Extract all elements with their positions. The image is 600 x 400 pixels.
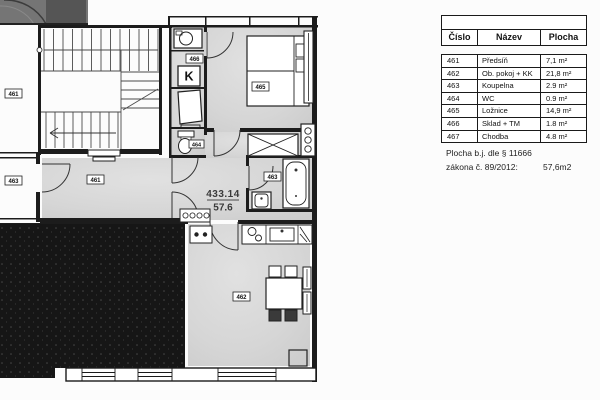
facade-wall bbox=[66, 368, 316, 381]
stair-walkline-arrow bbox=[50, 128, 116, 138]
label-wc: 464 bbox=[189, 140, 204, 149]
stair-treads-lower bbox=[41, 112, 121, 148]
label-predsin: 461 bbox=[87, 175, 104, 184]
bathtub-icon bbox=[283, 159, 309, 208]
staircase bbox=[37, 25, 172, 155]
cell-plocha: 7,1 m² bbox=[540, 55, 586, 67]
cell-nazev: Ložnice bbox=[477, 105, 540, 117]
col-header-plocha: Plocha bbox=[540, 30, 586, 45]
cell-nazev: Ob. pokoj + KK bbox=[477, 68, 540, 80]
page: 461 463 461 466 464 465 463 462 K 433.14… bbox=[0, 0, 600, 400]
cell-cislo: 463 bbox=[442, 80, 477, 92]
table-row: 461 Předsíň 7,1 m² bbox=[442, 55, 586, 67]
note-line1: Plocha b.j. dle § 11666 bbox=[446, 148, 532, 158]
cell-nazev: Sklad + TM bbox=[477, 118, 540, 130]
kitchen-counter bbox=[242, 225, 312, 244]
label-sklad: 466 bbox=[186, 54, 203, 63]
cell-nazev: Chodba bbox=[477, 131, 540, 143]
table-row: 466 Sklad + TM 1.8 m² bbox=[442, 117, 586, 130]
legend-header-box: Číslo Název Plocha bbox=[441, 15, 587, 46]
bedroom-label-text: 465 bbox=[255, 85, 266, 91]
label-neighbor-463: 463 bbox=[5, 176, 22, 185]
washbasin-icon bbox=[252, 192, 271, 209]
stair-treads-right bbox=[121, 50, 159, 149]
label-bedroom: 465 bbox=[252, 82, 269, 91]
cell-cislo: 462 bbox=[442, 68, 477, 80]
sklad-label-text: 466 bbox=[189, 57, 200, 63]
predsin-label-text: 461 bbox=[90, 178, 101, 184]
boiler-letter: K bbox=[184, 70, 193, 84]
legend-panel: Číslo Název Plocha 461 Předsíň 7,1 m² 46… bbox=[438, 0, 600, 400]
cell-plocha: 0.9 m² bbox=[540, 93, 586, 105]
entry-threshold bbox=[88, 150, 120, 161]
neighbor-unit-masked bbox=[0, 224, 185, 378]
cell-cislo: 465 bbox=[442, 105, 477, 117]
unit-number-text: 433.14 bbox=[206, 189, 240, 200]
stair-door-knob bbox=[37, 48, 42, 53]
cell-cislo: 461 bbox=[442, 55, 477, 67]
cell-plocha: 14,9 m² bbox=[540, 105, 586, 117]
table-row: 464 WC 0.9 m² bbox=[442, 92, 586, 105]
table-row: 462 Ob. pokoj + KK 21,8 m² bbox=[442, 67, 586, 80]
cell-nazev: Koupelna bbox=[477, 80, 540, 92]
stair-treads-upper bbox=[41, 29, 158, 71]
cell-cislo: 464 bbox=[442, 93, 477, 105]
note-total-area: 57,6m2 bbox=[543, 162, 571, 172]
bed-icon bbox=[247, 36, 309, 106]
label-neighbor-461: 461 bbox=[5, 89, 22, 98]
water-heater-icon bbox=[178, 90, 202, 128]
wc-label-text: 464 bbox=[192, 143, 202, 149]
closet bbox=[248, 134, 298, 156]
col-header-nazev: Název bbox=[477, 30, 540, 45]
bathroom-label-text: 463 bbox=[267, 175, 278, 181]
unit-area-text: 57.6 bbox=[213, 203, 233, 214]
floor-plan: 461 463 461 466 464 465 463 462 K 433.14… bbox=[0, 0, 435, 400]
cell-plocha: 21,8 m² bbox=[540, 68, 586, 80]
neighbor-461-text: 461 bbox=[8, 92, 19, 98]
exterior-dark-area bbox=[0, 0, 88, 25]
cell-plocha: 4.8 m² bbox=[540, 131, 586, 143]
legend-table: 461 Předsíň 7,1 m² 462 Ob. pokoj + KK 21… bbox=[441, 54, 587, 143]
table-row: 465 Ložnice 14,9 m² bbox=[442, 104, 586, 117]
note-line2-label: zákona č. 89/2012: bbox=[446, 162, 518, 172]
col-header-cislo: Číslo bbox=[442, 30, 477, 45]
cell-cislo: 467 bbox=[442, 131, 477, 143]
bedroom-window bbox=[304, 31, 313, 103]
table-row: 463 Koupelna 2.9 m² bbox=[442, 79, 586, 92]
legend-header-row: Číslo Název Plocha bbox=[442, 29, 586, 45]
cell-nazev: Předsíň bbox=[477, 55, 540, 67]
cell-nazev: WC bbox=[477, 93, 540, 105]
table-row: 467 Chodba 4.8 m² bbox=[442, 130, 586, 143]
cooktop-niche bbox=[180, 209, 210, 222]
note-line2: zákona č. 89/2012: 57,6m2 bbox=[446, 162, 518, 172]
neighbor-463-text: 463 bbox=[8, 179, 19, 185]
shaft bbox=[301, 124, 315, 156]
cell-cislo: 466 bbox=[442, 118, 477, 130]
label-living: 462 bbox=[233, 292, 250, 301]
sink-counter-small bbox=[190, 226, 212, 243]
cell-plocha: 2.9 m² bbox=[540, 80, 586, 92]
washer-icon bbox=[174, 29, 202, 48]
cell-plocha: 1.8 m² bbox=[540, 118, 586, 130]
label-bathroom: 463 bbox=[264, 172, 281, 181]
living-label-text: 462 bbox=[236, 295, 247, 301]
